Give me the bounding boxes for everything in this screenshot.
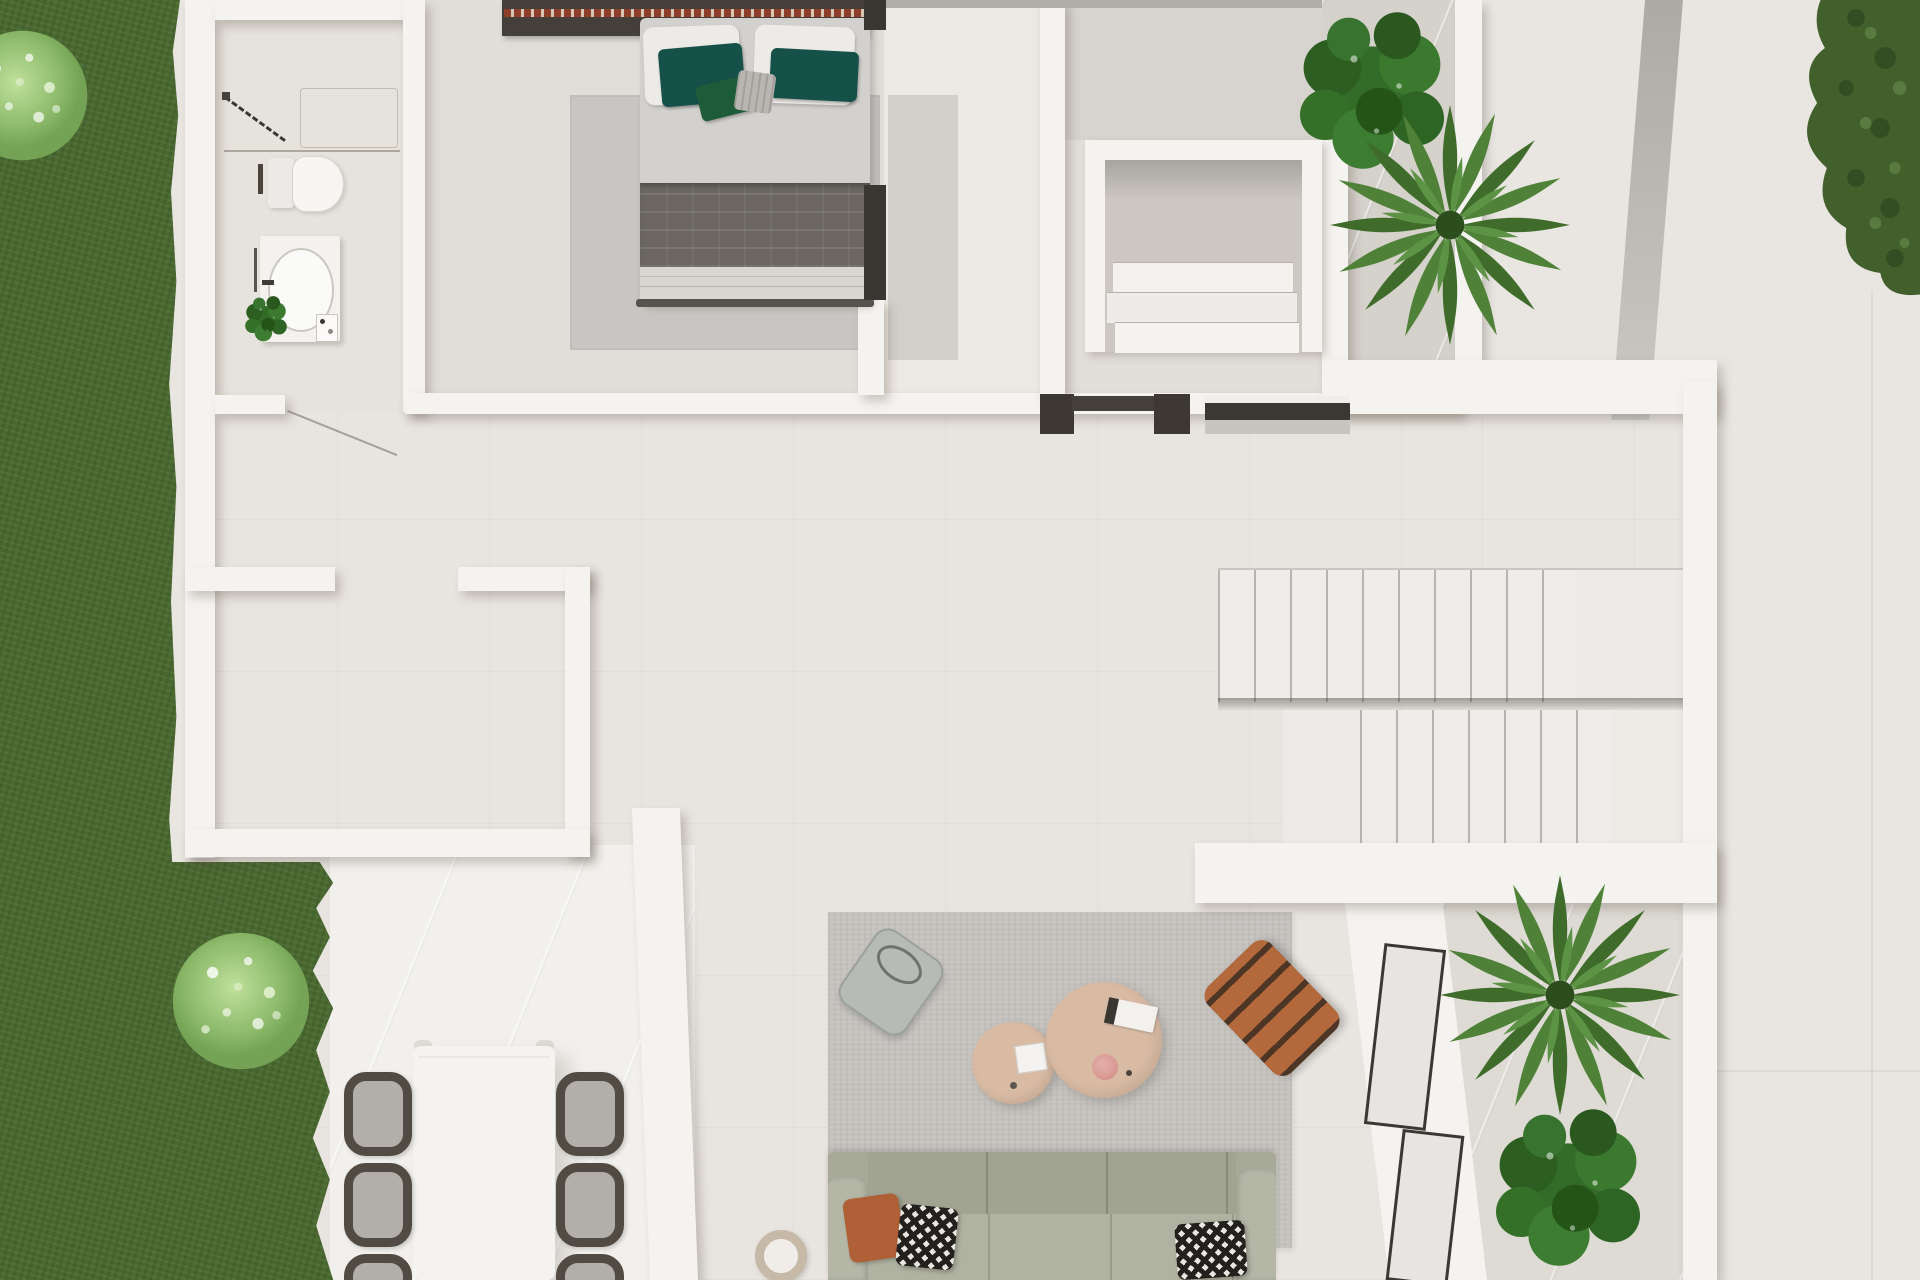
terrace-hedge xyxy=(1788,0,1920,318)
stairs-lower-landing-left xyxy=(1283,710,1360,848)
planter-palm-plant xyxy=(1440,875,1680,1115)
wall-stairhall-top xyxy=(1322,360,1717,414)
bedroom-window-strip xyxy=(884,0,1322,8)
glazed-panel xyxy=(1205,396,1350,434)
tray-bottle-dark xyxy=(320,319,325,324)
vanity-faucet xyxy=(262,280,274,285)
bed-foot-fold xyxy=(640,267,870,299)
dining-chair xyxy=(556,1254,624,1280)
vanity-plant xyxy=(240,294,292,346)
wall-closet-laundry xyxy=(1040,0,1065,396)
vanity-tray xyxy=(316,314,338,342)
shower-glass-line xyxy=(224,150,400,152)
bed-blanket-band xyxy=(640,183,870,267)
wall-bathroom-top xyxy=(215,0,405,20)
wall-stairhall-right xyxy=(1683,382,1717,1280)
coffee-table-large xyxy=(1046,982,1162,1098)
bed-cushion-teal-right xyxy=(769,48,859,103)
glazed-panel-sill-bottom xyxy=(1205,420,1350,434)
stairs-lower-landing-right xyxy=(1612,710,1683,848)
bed-cushion-knit xyxy=(733,70,776,115)
wall-storage-top-left xyxy=(185,567,335,591)
coffee-table-tray xyxy=(1014,1042,1048,1074)
toilet-flush-plate xyxy=(258,164,263,194)
terrace-tile-line-h xyxy=(1717,1070,1920,1072)
bed xyxy=(502,0,868,352)
toilet-tank xyxy=(268,158,294,208)
dining-chair xyxy=(344,1163,412,1247)
sofa xyxy=(828,1152,1276,1280)
bathroom-towel-rail xyxy=(254,248,257,292)
wall-bathroom-door-jamb xyxy=(215,395,285,414)
coffee-table-flowers xyxy=(1092,1054,1118,1080)
door-leaf-left xyxy=(1040,394,1074,434)
coffee-table-small xyxy=(972,1022,1054,1104)
stairs-lower-flight xyxy=(1283,710,1683,850)
stairs-lower-treads xyxy=(1360,710,1612,848)
wall-storage-right xyxy=(565,567,590,855)
closet-runner-rug xyxy=(888,95,958,360)
wall-bathroom-bedroom xyxy=(403,0,425,412)
dining-chair xyxy=(344,1072,412,1156)
shelf-box-3 xyxy=(1115,322,1299,353)
coffee-table-vase-dot xyxy=(1126,1070,1132,1076)
shower-tray-outline xyxy=(300,88,398,148)
glazed-panel-sill-top xyxy=(1205,396,1350,403)
dining-chair xyxy=(556,1163,624,1247)
sofa-pillow-checker-left xyxy=(895,1203,959,1271)
wall-storage-bottom xyxy=(185,829,590,857)
courtyard-palm-plant xyxy=(1330,105,1570,345)
closet-dresser xyxy=(864,185,886,300)
dining-table-edge-line xyxy=(419,1056,549,1058)
side-stool-round xyxy=(755,1230,807,1280)
stairs-upper-treads xyxy=(1218,570,1575,702)
stairs-upper-landing xyxy=(1575,570,1683,702)
glazed-panel-glass xyxy=(1205,403,1350,420)
door-lintel xyxy=(1072,396,1156,411)
dining-table xyxy=(413,1046,555,1280)
closet-wardrobe-top xyxy=(864,0,886,30)
stairs-mid-gap-shadow xyxy=(1218,698,1683,710)
tray-bottle-light xyxy=(328,329,333,334)
shower-head xyxy=(222,92,230,100)
shelf-box-2 xyxy=(1107,292,1297,323)
tall-wall-shadow xyxy=(1611,0,1683,420)
bed-headboard-trim xyxy=(504,9,866,17)
toilet-bowl xyxy=(292,156,344,212)
terrace-tile-line-v xyxy=(1871,290,1873,1280)
planter-fiddle-leaf-plant xyxy=(1478,1102,1658,1280)
shelf-box-1 xyxy=(1113,262,1293,293)
sofa-pillow-checker-right xyxy=(1174,1220,1248,1280)
floorplan-canvas xyxy=(0,0,1920,1280)
stairs-upper-flight xyxy=(1218,568,1683,702)
dining-chair xyxy=(556,1072,624,1156)
garden-bush-bottom xyxy=(170,930,312,1072)
wall-exterior-left xyxy=(185,0,215,858)
garden-bush-top xyxy=(0,28,90,163)
shelf-niche-shadow xyxy=(1105,160,1302,200)
dining-chair xyxy=(344,1254,412,1280)
coffee-table-cup xyxy=(1010,1082,1017,1089)
bed-frame-footer xyxy=(636,299,874,307)
door-leaf-right xyxy=(1154,394,1190,434)
